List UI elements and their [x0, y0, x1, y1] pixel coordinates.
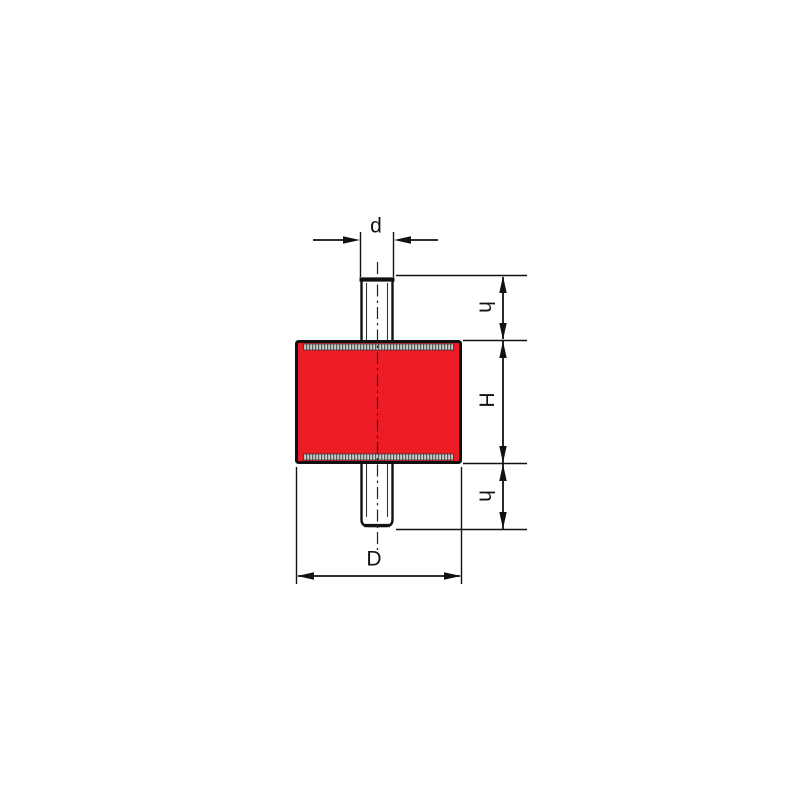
dimension-body-height [499, 341, 506, 463]
arrowhead-left-icon [394, 236, 411, 243]
label-stud-diameter: d [370, 216, 382, 237]
arrowhead-up-icon [499, 341, 506, 358]
bottom-metal-plate [304, 454, 454, 460]
arrowhead-down-icon [499, 446, 506, 463]
arrowhead-down-icon [499, 323, 506, 340]
dimension-upper-stud-length [499, 276, 506, 340]
arrowhead-up-icon [499, 464, 506, 481]
technical-drawing [0, 0, 800, 800]
top-metal-plate [304, 344, 454, 350]
arrowhead-right-icon [343, 236, 360, 243]
label-body-height: H [476, 392, 497, 407]
arrowhead-down-icon [499, 512, 506, 529]
label-body-diameter: D [366, 549, 381, 570]
arrowhead-right-icon [444, 572, 461, 579]
dimension-stud-diameter [313, 232, 438, 277]
arrowhead-up-icon [499, 276, 506, 293]
rubber-body [297, 342, 461, 463]
label-upper-stud-length: h [476, 301, 497, 313]
rubber-cylinder [297, 342, 461, 463]
drawing-canvas: d h H h D [0, 0, 800, 800]
arrowhead-left-icon [297, 572, 314, 579]
dimension-lower-stud-length [499, 464, 506, 529]
label-lower-stud-length: h [476, 490, 497, 502]
